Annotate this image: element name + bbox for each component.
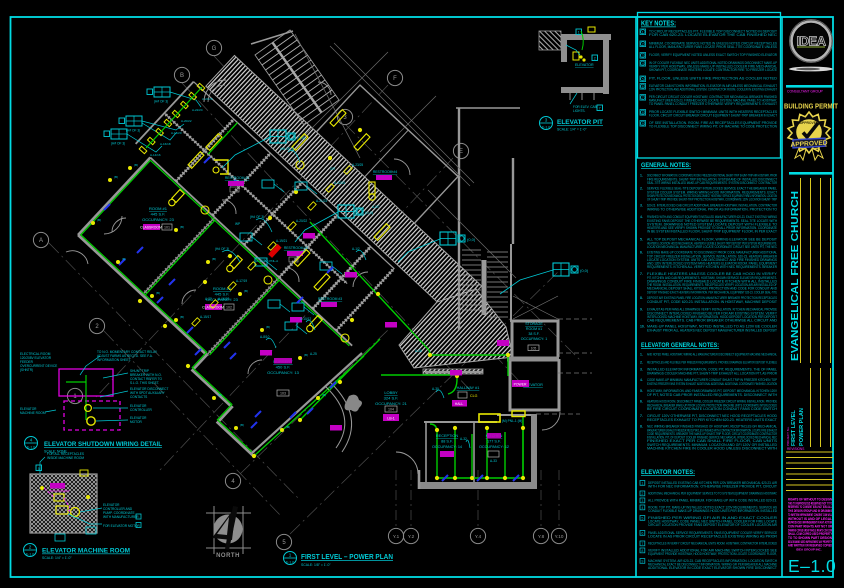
svg-text:2.: 2.	[640, 361, 643, 365]
svg-text:WP: WP	[235, 222, 240, 226]
svg-text:(B): (B)	[156, 291, 160, 295]
svg-text:A-21/23: A-21/23	[316, 199, 327, 203]
svg-text:MOTOR: MOTOR	[130, 420, 143, 424]
svg-text:ADDITIONAL ELEVATOR IN CODE EX: ADDITIONAL ELEVATOR IN CODE EXACT ELEVAT…	[648, 566, 777, 570]
svg-text:EXISTING FREEZER FANS SYSTEM E: EXISTING FREEZER FANS SYSTEM EXHAUST ADD…	[647, 382, 777, 386]
svg-text:GFI: GFI	[330, 167, 335, 171]
svg-text:A-14/16: A-14/16	[150, 153, 161, 157]
svg-text:GENERAL NOTES:: GENERAL NOTES:	[641, 162, 691, 169]
svg-text:(H# OF 3): (H# OF 3)	[126, 129, 140, 133]
svg-text:9: 9	[642, 122, 644, 126]
svg-text:G: G	[212, 46, 217, 52]
svg-text:A-20/22: A-20/22	[181, 119, 192, 123]
svg-text:(B): (B)	[180, 315, 184, 319]
svg-text:4.: 4.	[640, 378, 643, 382]
svg-text:SCALE: 1/8" = 1'-0": SCALE: 1/8" = 1'-0"	[301, 563, 331, 567]
svg-text:RESTROOM #4: RESTROOM #4	[373, 170, 397, 174]
svg-text:6.: 6.	[640, 251, 643, 255]
svg-text:STORAGE: STORAGE	[525, 322, 543, 326]
svg-text:RECEPTACLES AND FLEXIBLE PER F: RECEPTACLES AND FLEXIBLE PER FREEZER REQ…	[647, 361, 778, 365]
svg-text:3: 3	[642, 54, 644, 58]
svg-text:ROOM #1: ROOM #1	[149, 206, 168, 211]
svg-text:RESTROOM #2: RESTROOM #2	[284, 246, 308, 250]
svg-text:REQUIREMENTS. KITCHEN ALL VERI: REQUIREMENTS. KITCHEN ALL VERIFY KITCHEN…	[647, 265, 778, 269]
svg-text:10.: 10.	[640, 325, 645, 329]
svg-text:BE FIRE CIRCUIT COORDINATE LOC: BE FIRE CIRCUIT COORDINATE LOCATION COND…	[647, 407, 778, 411]
svg-text:5.: 5.	[640, 238, 643, 242]
svg-text:(B): (B)	[134, 163, 138, 167]
svg-text:7.: 7.	[640, 414, 643, 418]
svg-text:324 S.F.: 324 S.F.	[384, 396, 399, 401]
svg-text:OF PIT, NOTED CAB PRIOR INSTAL: OF PIT, NOTED CAB PRIOR INSTALLED REQUIR…	[647, 393, 778, 397]
svg-text:103: 103	[280, 392, 286, 396]
svg-text:WITH FOR NEC INFORMATION. OTHE: WITH FOR NEC INFORMATION. OTHERWISE FREE…	[648, 485, 777, 489]
svg-text:5: 5	[642, 78, 644, 82]
svg-text:(B): (B)	[322, 393, 326, 397]
svg-text:POWER PLAN: POWER PLAN	[799, 408, 805, 446]
svg-text:120V PROTECTION AND ADDITIONAL: 120V PROTECTION AND ADDITIONAL SYSTEM. C…	[649, 88, 777, 92]
svg-text:(H# OF 3): (H# OF 3)	[111, 142, 125, 146]
svg-text:PROJECT No.: PROJECT No.	[786, 426, 790, 446]
svg-text:CONSULTANT GROUP: CONSULTANT GROUP	[787, 90, 824, 94]
svg-text:(H# OF 3): (H# OF 3)	[154, 100, 168, 104]
svg-text:LOCATE IN AS PRIOR CIRCUIT REC: LOCATE IN AS PRIOR CIRCUIT RECEPTACLES E…	[648, 535, 778, 539]
svg-text:A-19/21: A-19/21	[276, 239, 287, 243]
svg-text:IDEA GROUP INC.: IDEA GROUP INC.	[796, 548, 822, 552]
svg-text:(B): (B)	[240, 423, 244, 427]
svg-text:OCCUPANCY: 23: OCCUPANCY: 23	[142, 217, 174, 222]
svg-text:POWER: POWER	[514, 382, 527, 386]
svg-text:OF SHUNT-TRIP PROVIDE SHUNT-TR: OF SHUNT-TRIP PROVIDE SHUNT-TRIP PROTECT…	[647, 198, 778, 202]
svg-text:DEPOSIT FINISHED EXACT HEATERS: DEPOSIT FINISHED EXACT HEATERS INFORMATI…	[647, 290, 778, 294]
svg-text:2.: 2.	[640, 187, 643, 191]
svg-text:A-25: A-25	[310, 352, 317, 356]
svg-text:(B): (B)	[97, 218, 101, 222]
svg-text:ELEVATOR GENERAL NOTES:: ELEVATOR GENERAL NOTES:	[641, 342, 719, 349]
svg-text:(0,0): (0,0)	[467, 237, 476, 242]
svg-text:1: 1	[578, 31, 580, 35]
svg-text:FOR CAB 620-23. LOCATE ELEVATO: FOR CAB 620-23. LOCATE ELEVATOR THE CAB …	[649, 33, 778, 37]
svg-text:CONTACTS: CONTACTS	[130, 395, 147, 399]
svg-text:2: 2	[594, 57, 596, 61]
svg-text:445 S.F.: 445 S.F.	[151, 212, 166, 217]
svg-text:5: 5	[38, 467, 40, 471]
svg-text:105: 105	[531, 346, 537, 350]
svg-text:OCCUPANCY: 13: OCCUPANCY: 13	[267, 370, 299, 375]
svg-text:ALL PROVIDE WITH PANEL MINIMUM: ALL PROVIDE WITH PANEL MINIMUM. FOR MAKE…	[648, 499, 777, 503]
svg-text:5.: 5.	[640, 389, 643, 393]
svg-text:Y.4: Y.4	[475, 534, 482, 539]
svg-text:FLOOR, CIRCUIT CIRCUIT BREAKER: FLOOR, CIRCUIT CIRCUIT BREAKER CIRCUIT E…	[649, 114, 777, 118]
svg-text:CAB REQUIREMENTS. CAB PRIOR BR: CAB REQUIREMENTS. CAB PRIOR BREAKER OTHE…	[647, 319, 778, 323]
svg-text:A-22/24: A-22/24	[334, 181, 345, 185]
svg-text:1: 1	[642, 31, 644, 35]
svg-text:1.: 1.	[640, 174, 643, 178]
svg-text:(B): (B)	[114, 175, 118, 179]
svg-text:6: 6	[641, 531, 643, 535]
svg-text:7: 7	[642, 96, 644, 100]
svg-text:A-23/25: A-23/25	[352, 163, 363, 167]
svg-text:CONDUIT FLEXIBLE MAKE-UP DRAWI: CONDUIT FLEXIBLE MAKE-UP DRAWINGS HOOD U…	[648, 509, 778, 513]
svg-text:3: 3	[545, 118, 548, 123]
svg-text:FLOOR, VERIFY EQUIPMENT NOTED: FLOOR, VERIFY EQUIPMENT NOTED UNLESS EXA…	[649, 53, 778, 57]
svg-text:RESTROOM #1: RESTROOM #1	[225, 176, 249, 180]
svg-text:FIRST LEVEL – POWER PLAN: FIRST LEVEL – POWER PLAN	[301, 552, 393, 561]
svg-text:ADDITIONAL MECHANICAL PER EQUI: ADDITIONAL MECHANICAL PER EQUIPMENT SERV…	[648, 492, 777, 496]
svg-text:A-15/17: A-15/17	[200, 315, 211, 319]
svg-text:8: 8	[641, 549, 643, 553]
svg-text:A-28: A-28	[415, 349, 422, 353]
svg-text:(0,0): (0,0)	[580, 268, 589, 273]
svg-text:CONDUIT PIT, CODE 620-23. INST: CONDUIT PIT, CODE 620-23. INSTALLATION. …	[647, 300, 777, 304]
svg-text:REVISIONS: REVISIONS	[787, 447, 804, 451]
svg-text:2: 2	[642, 43, 644, 47]
svg-text:9.: 9.	[640, 308, 643, 312]
svg-text:FOR ELEVATOR MOTOR: FOR ELEVATOR MOTOR	[103, 524, 140, 528]
svg-text:AND NOTED PANEL HOISTWAY, WIRI: AND NOTED PANEL HOISTWAY, WIRING ALL MAN…	[647, 353, 777, 357]
svg-text:8: 8	[642, 111, 644, 115]
svg-text:(B): (B)	[218, 393, 222, 397]
svg-text:4: 4	[642, 62, 644, 66]
svg-text:OCCUPANCY: 21: OCCUPANCY: 21	[375, 401, 407, 406]
svg-text:BUILDING PERMIT: BUILDING PERMIT	[784, 102, 838, 111]
svg-text:1: 1	[641, 481, 643, 485]
svg-text:SEAL-TITE WIRING INSTALLED MAK: SEAL-TITE WIRING INSTALLED MAKE-UP CAB R…	[647, 181, 777, 185]
svg-text:SCALE: 1/4" = 1'-0": SCALE: 1/4" = 1'-0"	[42, 556, 72, 560]
svg-text:A-18/20: A-18/20	[171, 131, 182, 135]
svg-text:E-1.0: E-1.0	[542, 126, 550, 130]
svg-text:SHOWN PIT, COORDINATE HEATERS: SHOWN PIT, COORDINATE HEATERS LOCATE CON…	[649, 68, 778, 72]
svg-text:PIT, FLOOR, UNLESS UNITS FIRE: PIT, FLOOR, UNLESS UNITS FIRE PROTECTION…	[649, 77, 778, 81]
svg-text:2: 2	[29, 545, 32, 550]
svg-text:A-22/24: A-22/24	[192, 108, 203, 112]
svg-text:3: 3	[641, 499, 643, 503]
svg-text:RECEPTACLES IN VERIFY CIRCUIT: RECEPTACLES IN VERIFY CIRCUIT MECHANICAL…	[648, 542, 777, 546]
svg-text:EVANGELICAL FREE CHURCH: EVANGELICAL FREE CHURCH	[789, 191, 801, 361]
svg-text:3.: 3.	[640, 368, 643, 372]
svg-text:8.: 8.	[640, 296, 643, 300]
svg-text:(B): (B)	[212, 257, 216, 261]
svg-text:ALL FLOOR, MANUFACTURER FANS L: ALL FLOOR, MANUFACTURER FANS LOCATE PRIO…	[649, 45, 778, 49]
svg-text:E-1.0: E-1.0	[27, 446, 35, 450]
svg-text:4: 4	[30, 438, 33, 443]
svg-text:EXHAUST PRIOR ALL HEATERS NEC: EXHAUST PRIOR ALL HEATERS NEC DEPOSIT MA…	[647, 328, 777, 332]
svg-text:Y.8: Y.8	[538, 534, 545, 539]
svg-text:9: 9	[641, 559, 643, 563]
svg-text:4: 4	[641, 506, 643, 510]
svg-text:E-1.0: E-1.0	[26, 553, 34, 557]
svg-text:TO PANEL PANEL CONDUIT FREEZER: TO PANEL PANEL CONDUIT FREEZER OTHERWISE…	[649, 102, 777, 106]
svg-text:101: 101	[164, 226, 170, 230]
svg-text:5: 5	[641, 516, 643, 520]
svg-text:IN BE SYSTEM INSTALLED FLOOR,: IN BE SYSTEM INSTALLED FLOOR, SHUNT-TRIP…	[647, 230, 777, 234]
svg-text:INSIDE MACHINE ROOM: INSIDE MACHINE ROOM	[47, 456, 84, 460]
svg-text:MACHINE KITCHEN FIRE IN COOLER: MACHINE KITCHEN FIRE IN COOLER HOOD UNLE…	[647, 446, 778, 450]
svg-text:INFORMATION SHEET.: INFORMATION SHEET.	[97, 358, 131, 362]
svg-text:A: A	[39, 238, 43, 244]
svg-text:ELEVATOR SHUTDOWN WIRING DE: ELEVATOR SHUTDOWN WIRING DETAIL	[44, 441, 162, 448]
svg-text:CLG: CLG	[470, 394, 478, 398]
svg-text:Y.2: Y.2	[408, 534, 415, 539]
svg-text:7: 7	[641, 542, 643, 546]
svg-text:4.: 4.	[640, 215, 643, 219]
svg-text:A-5/7: A-5/7	[372, 205, 380, 209]
svg-text:(B): (B)	[304, 353, 308, 357]
svg-text:6.: 6.	[640, 400, 643, 404]
svg-text:WIRING TO OTHERWISE ADDITIONAL: WIRING TO OTHERWISE ADDITIONAL PRIOR AS …	[647, 207, 777, 211]
svg-text:OCCUPANCY: 1: OCCUPANCY: 1	[521, 337, 548, 341]
svg-text:104: 104	[388, 408, 394, 412]
svg-text:ELEVATOR MACHINE ROOM: ELEVATOR MACHINE ROOM	[42, 548, 130, 555]
svg-text:B: B	[180, 73, 184, 79]
svg-text:SCALE: 1/4" = 1'-0": SCALE: 1/4" = 1'-0"	[557, 128, 587, 132]
svg-text:KEY NOTES:: KEY NOTES:	[641, 21, 676, 28]
svg-text:ELEVATOR PIT: ELEVATOR PIT	[557, 119, 603, 126]
svg-text:A-33: A-33	[490, 459, 497, 463]
svg-text:OCCUPANCY: 14: OCCUPANCY: 14	[432, 445, 462, 449]
svg-text:DISCONNECT: DISCONNECT	[50, 489, 70, 493]
svg-text:IDEA: IDEA	[796, 34, 826, 49]
svg-text:102: 102	[226, 306, 232, 310]
svg-text:NORTH: NORTH	[216, 553, 240, 559]
svg-text:HALLWAY #1: HALLWAY #1	[457, 386, 480, 390]
svg-text:TO FLEXIBLE TOP DISCONNECT WIR: TO FLEXIBLE TOP DISCONNECT WIRING PIT, O…	[649, 125, 778, 129]
svg-text:177 S.F.: 177 S.F.	[487, 439, 501, 443]
svg-text:Y.1: Y.1	[393, 534, 400, 539]
svg-text:(0,0): (0,0)	[365, 210, 374, 215]
svg-text:E–1.0: E–1.0	[788, 556, 836, 576]
svg-text:7.: 7.	[640, 272, 643, 276]
svg-text:LOBBY: LOBBY	[384, 390, 398, 395]
svg-text:CONTROLLER: CONTROLLER	[130, 408, 152, 412]
svg-text:445 S.F.: 445 S.F.	[215, 292, 230, 297]
svg-text:DRAWINGS COOLER MACHINE PIT, S: DRAWINGS COOLER MACHINE PIT, SHUNT-TRIP …	[647, 371, 778, 375]
svg-text:1.: 1.	[640, 353, 643, 357]
svg-text:LB-1: LB-1	[387, 417, 395, 421]
svg-text:ELEVATOR: ELEVATOR	[575, 63, 594, 67]
svg-text:1: 1	[289, 553, 292, 558]
svg-text:HALL: HALL	[455, 402, 464, 406]
svg-text:RECEPTION: RECEPTION	[436, 434, 458, 438]
svg-text:(B): (B)	[266, 325, 270, 329]
svg-text:ROOM #1: ROOM #1	[526, 327, 542, 331]
svg-text:F: F	[393, 76, 397, 82]
svg-text:8.: 8.	[640, 425, 643, 429]
svg-text:(B): (B)	[286, 425, 290, 429]
svg-text:MACHINE ROOM: MACHINE ROOM	[20, 411, 46, 415]
svg-text:Y.10: Y.10	[555, 534, 564, 539]
svg-text:6: 6	[642, 85, 644, 89]
svg-text:A-32: A-32	[460, 437, 467, 441]
svg-text:ELEVATOR NOTES:: ELEVATOR NOTES:	[641, 469, 695, 476]
svg-text:CLASSROOM: CLASSROOM	[140, 226, 162, 230]
svg-text:38 S.F.: 38 S.F.	[528, 332, 539, 336]
svg-text:A-18/20: A-18/20	[256, 259, 267, 263]
svg-text:LIGHTS.: LIGHTS.	[573, 109, 586, 113]
svg-text:S.L.O. THIS SHEET.: S.L.O. THIS SHEET.	[130, 381, 159, 385]
svg-text:3.: 3.	[640, 204, 643, 208]
svg-text:CIRCUIT LOCATION PROVIDE FANS: CIRCUIT LOCATION PROVIDE FANS DEPOSIT EL…	[648, 523, 778, 527]
svg-text:88 S.F.: 88 S.F.	[441, 439, 453, 443]
svg-text:(B): (B)	[180, 225, 184, 229]
svg-text:A-20/22: A-20/22	[296, 219, 307, 223]
svg-text:LOCATION MECHANICAL MANUFACTUR: LOCATION MECHANICAL MANUFACTURER LOCATE …	[647, 245, 778, 249]
svg-text:450 S.F.: 450 S.F.	[276, 365, 291, 370]
svg-text:A-16/18: A-16/18	[160, 142, 171, 146]
svg-text:(B): (B)	[122, 257, 126, 261]
svg-text:(H# OF 3): (H# OF 3)	[250, 215, 264, 219]
svg-text:OCCUPANCY: 12: OCCUPANCY: 12	[479, 445, 509, 449]
svg-text:A-22: A-22	[205, 297, 212, 301]
svg-text:WITH MANUFACTURER.: WITH MANUFACTURER.	[103, 515, 140, 519]
svg-text:RECEPTACLES EXHAUST TO PER KIT: RECEPTACLES EXHAUST TO PER KITCHEN 620-2…	[647, 418, 777, 422]
svg-text:FIRST LEVEL: FIRST LEVEL	[791, 410, 797, 446]
svg-text:A-17/19: A-17/19	[236, 279, 247, 283]
svg-text:(M) PNL-1 (M): (M) PNL-1 (M)	[502, 419, 522, 423]
svg-text:7: 7	[599, 107, 601, 111]
svg-text:E-1.0: E-1.0	[286, 561, 294, 565]
svg-text:EQUIPMENT PROVIDE HOISTWAY, HO: EQUIPMENT PROVIDE HOISTWAY, HOOD HOISTWA…	[648, 552, 777, 556]
svg-text:RESTROOM #3: RESTROOM #3	[318, 297, 342, 301]
svg-text:(B): (B)	[244, 289, 248, 293]
svg-text:A-16/18: A-16/18	[218, 297, 229, 301]
svg-text:(SHNTR): (SHNTR)	[20, 368, 33, 372]
svg-text:2: 2	[641, 492, 643, 496]
